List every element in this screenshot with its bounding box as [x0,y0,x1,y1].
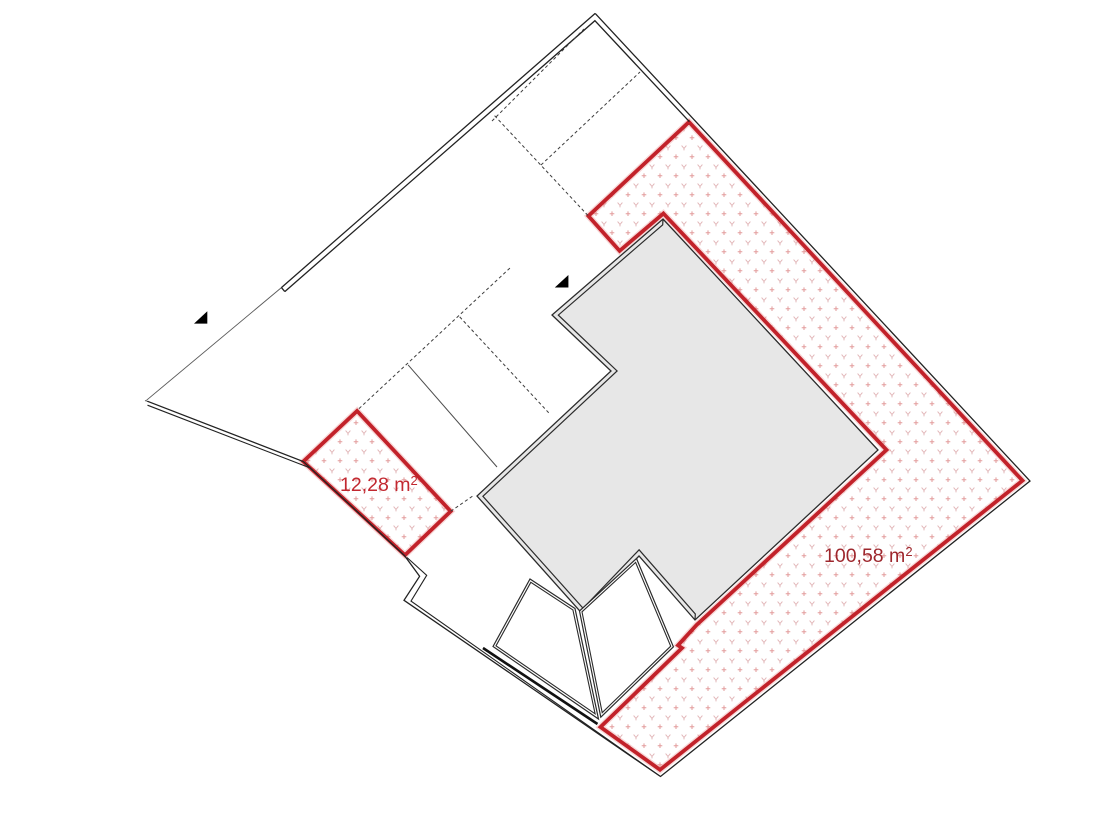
svg-text:12,28 m2: 12,28 m2 [340,473,418,496]
svg-text:100,58 m2: 100,58 m2 [824,544,913,567]
